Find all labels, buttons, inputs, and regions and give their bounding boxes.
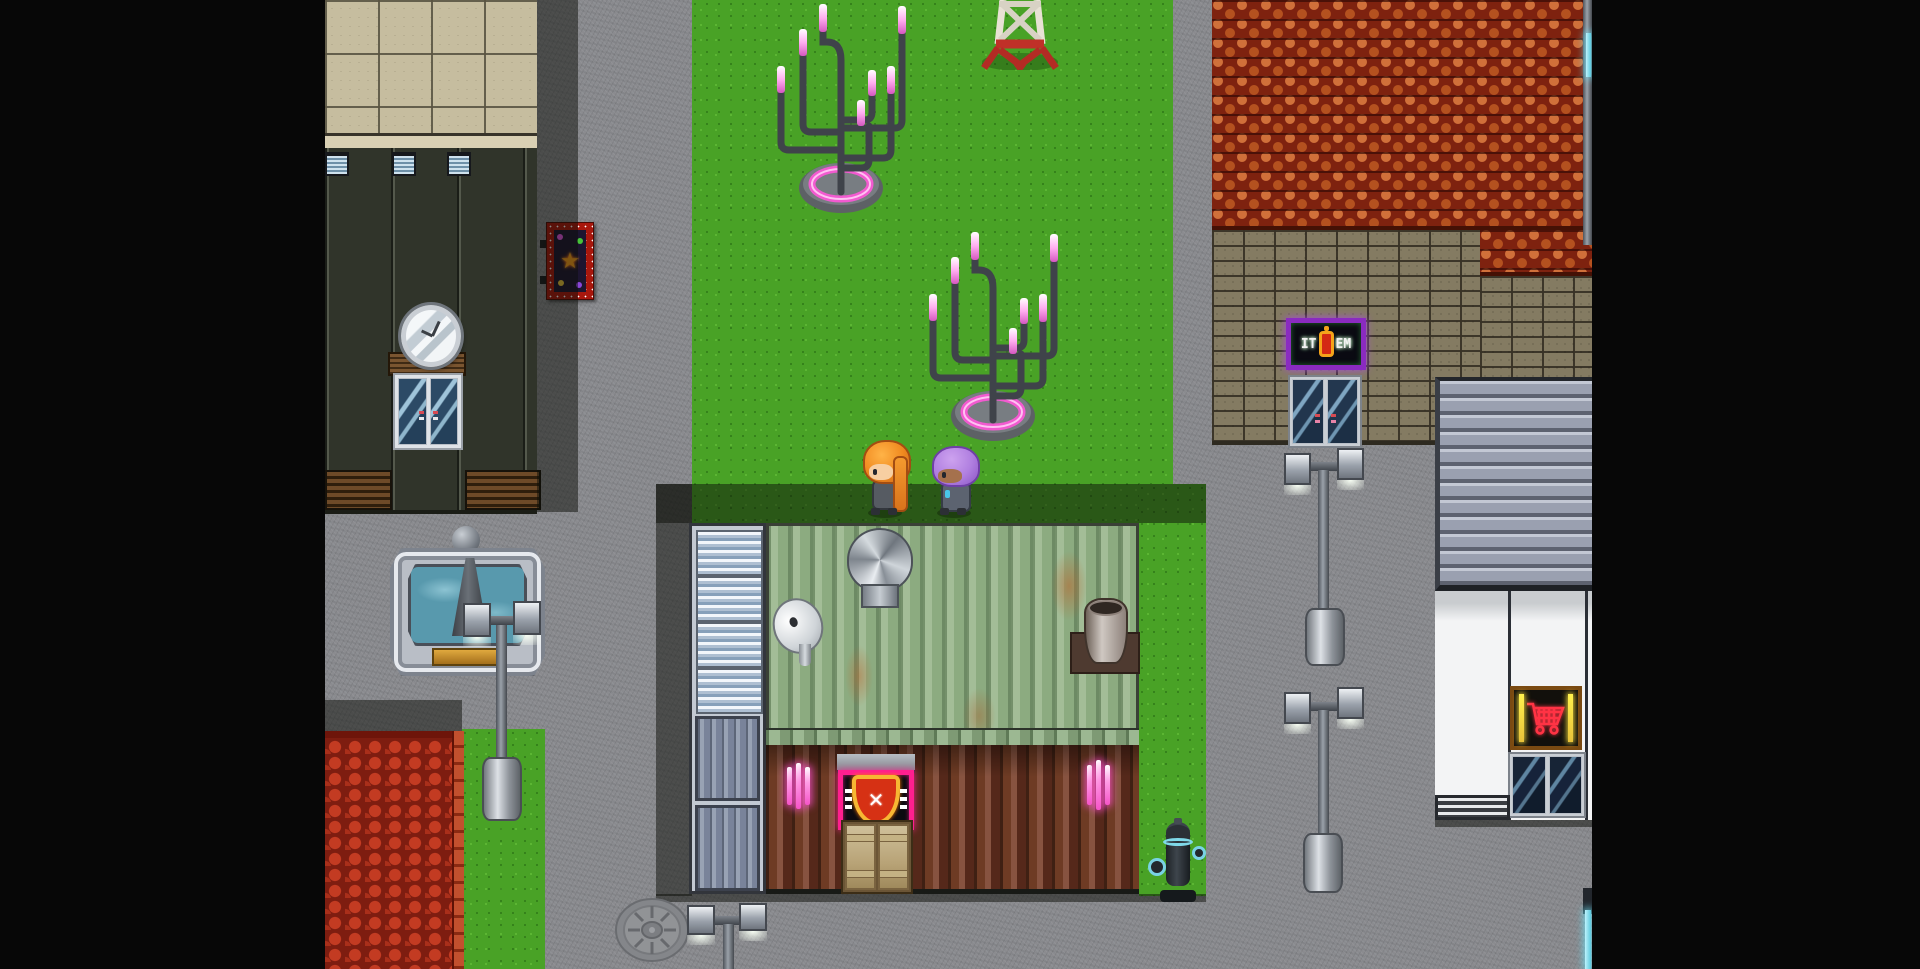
cyan-neon-tube: [1586, 33, 1591, 77]
lamp-glow: [1284, 485, 1311, 495]
street-lamp-head: [1337, 687, 1364, 719]
market-awning: [1435, 377, 1592, 591]
cyan-neon-tube: [1585, 910, 1591, 969]
fountain-plaque: [432, 648, 498, 666]
radio-tower: [978, 0, 1063, 70]
shield-x-icon: ✕: [852, 775, 900, 825]
game-viewport[interactable]: ★: [325, 0, 1592, 969]
sign-text-right: EM: [1336, 337, 1352, 352]
vent-grill-icon: [325, 152, 349, 176]
base-vent: [325, 470, 392, 510]
street-lamp-base: [482, 757, 522, 821]
item-shop-roof-lower: [1480, 230, 1592, 276]
item-shop-roof: [1212, 0, 1592, 230]
hair-braid: [893, 456, 908, 512]
pink-neon-light: [787, 763, 810, 809]
game-screen: ★: [0, 0, 1920, 969]
potion-bottle-icon: [1319, 331, 1334, 357]
lamp-glow: [1284, 724, 1311, 734]
left-building-doors[interactable]: [393, 373, 463, 450]
door-right[interactable]: [430, 378, 459, 445]
base-vent: [465, 470, 541, 510]
lamp-glow: [463, 637, 491, 647]
lamp-glow: [739, 931, 767, 941]
lamp-glow: [1337, 719, 1364, 729]
door-left[interactable]: [845, 824, 876, 890]
market-cart-sign: [1510, 686, 1582, 750]
vent-grill-icon: [447, 152, 471, 176]
street-lamp-base: [1303, 833, 1343, 893]
metal-shutter: [696, 668, 763, 714]
building-shadow: [537, 0, 578, 512]
street-lamp-pole: [1318, 710, 1329, 835]
street-lamp-pole: [496, 625, 507, 763]
shutter-column: [689, 523, 766, 894]
candelabra-street-light: [917, 228, 1082, 443]
candelabra-street-light: [765, 0, 930, 215]
banner-trim: [845, 789, 852, 811]
letterbox-right: [1592, 0, 1920, 969]
vent-grill-icon: [392, 152, 416, 176]
lamp-glow: [687, 935, 715, 945]
street-lamp-pole: [723, 924, 734, 969]
turbine-vent-icon: [843, 528, 913, 606]
letterbox-left: [0, 0, 325, 969]
building-shadow: [656, 894, 1206, 902]
red-roof-edge: [452, 731, 464, 969]
satellite-dish-icon: [773, 598, 833, 668]
fire-hydrant: [1150, 818, 1206, 902]
red-scalloped-roof: [325, 731, 462, 969]
metal-crate: [695, 805, 760, 891]
item-shop-wall-right: [1480, 276, 1592, 377]
left-building-roof: [325, 0, 537, 133]
street-lamp-pole: [1318, 470, 1329, 610]
building-shadow: [656, 484, 692, 896]
character-purple-haired-girl[interactable]: [931, 446, 977, 518]
neon-tube: [1568, 694, 1573, 742]
market-doors[interactable]: [1508, 752, 1586, 818]
character-orange-haired-girl[interactable]: [862, 440, 908, 518]
pink-neon-light: [1087, 760, 1110, 810]
wall-clock: [401, 305, 461, 367]
neon-tube: [1519, 694, 1524, 742]
street-lamp-head: [739, 903, 767, 931]
outfit-accent: [945, 490, 950, 498]
warehouse-doors[interactable]: [841, 820, 913, 894]
lamp-glow: [1337, 480, 1364, 490]
street-lamp-head: [513, 601, 541, 635]
manhole-cover: [615, 898, 689, 964]
shopping-cart-icon: [1524, 698, 1568, 738]
door-left[interactable]: [1512, 756, 1546, 814]
warehouse-front-wall: [766, 745, 1139, 894]
street-lamp-head: [687, 905, 715, 935]
street-lamp-head: [463, 603, 491, 637]
metal-shutter: [696, 530, 763, 576]
door-right[interactable]: [1549, 756, 1583, 814]
sign-text-left: IT: [1301, 337, 1317, 352]
item-shop-doors[interactable]: [1288, 375, 1362, 448]
lamp-glow: [513, 635, 541, 645]
street-lamp-base: [1305, 608, 1345, 666]
door-right[interactable]: [1327, 379, 1359, 444]
door-right[interactable]: [878, 824, 909, 890]
door-left[interactable]: [1292, 379, 1324, 444]
building-shadow: [1435, 820, 1592, 827]
chimney-vent-icon: [1070, 598, 1140, 674]
street-lamp-head: [1337, 448, 1364, 480]
street-lamp-head: [1284, 692, 1311, 724]
street-lamp-head: [1284, 453, 1311, 485]
door-left[interactable]: [398, 378, 427, 445]
item-shop-neon-sign: IT EM: [1286, 318, 1366, 370]
metal-shutter: [696, 622, 763, 668]
loading-shutter: [1435, 795, 1510, 820]
banner-trim: [900, 789, 907, 811]
metal-crate: [695, 716, 760, 801]
metal-shutter: [696, 576, 763, 622]
